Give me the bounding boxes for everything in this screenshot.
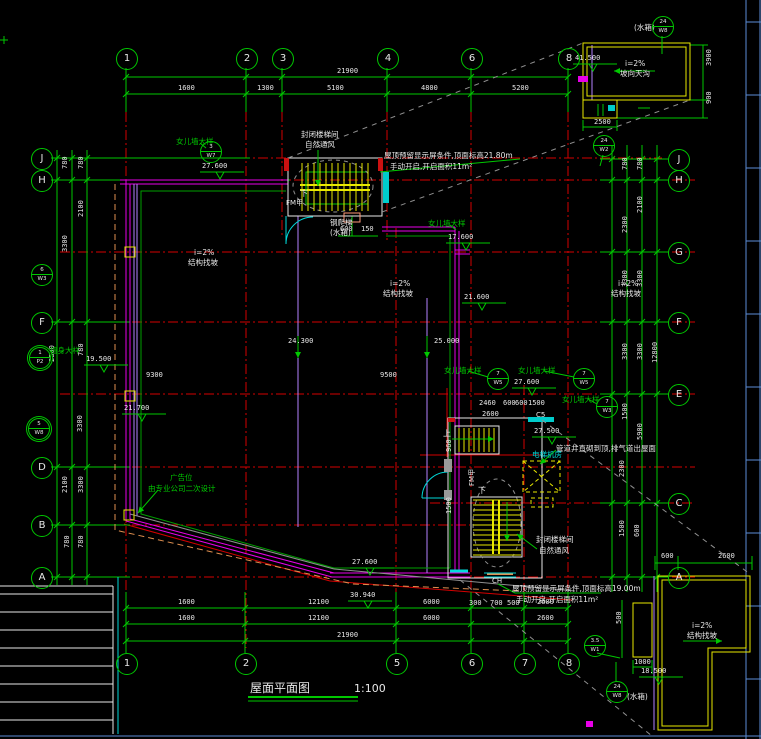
text-overlay: 2190016001300510048005200160012100600030… <box>0 0 761 739</box>
detail-callout: 24W8 <box>606 681 628 703</box>
dimension-label: 3300 <box>77 415 84 432</box>
dimension-label: 780 <box>62 156 69 169</box>
annotation: 女儿墙大样 <box>444 367 482 375</box>
dimension-label: 780 <box>622 157 629 170</box>
axis-bubble-6: 6 <box>461 653 483 675</box>
axis-bubble-G: G <box>668 242 690 264</box>
axis-bubble-J: J <box>31 148 53 170</box>
dimension-label: 600 <box>503 400 516 407</box>
dimension-label: 2300 <box>619 460 626 477</box>
dimension-label: 1500 <box>622 403 629 420</box>
annotation: 墙身大样 <box>50 347 80 355</box>
dimension-label: 21900 <box>337 68 358 75</box>
dimension-label: 3300 <box>637 343 644 360</box>
plan-label: 上 <box>443 430 451 438</box>
axis-bubble-A: A <box>668 567 690 589</box>
dimension-label: 2460 <box>479 400 496 407</box>
dimension-label: 900 <box>706 91 713 104</box>
dimension-label: 12100 <box>308 599 329 606</box>
annotation: 由专业公司二次设计 <box>148 485 216 493</box>
dimension-label: 1300 <box>257 85 274 92</box>
detail-callout: 3W7 <box>200 141 222 163</box>
dimension-label: 1000 <box>634 659 651 666</box>
cad-viewport: 2190016001300510048005200160012100600030… <box>0 0 761 739</box>
dimension-label: 1600 <box>178 85 195 92</box>
annotation: 电梯机房 <box>532 451 562 459</box>
axis-bubble-2: 2 <box>235 653 257 675</box>
dimension-label: 2600 <box>718 553 735 560</box>
plan-label: 下 <box>300 190 308 198</box>
annotation: 女儿墙大样 <box>518 367 556 375</box>
dimension-label: 12100 <box>308 615 329 622</box>
annotation: 女儿墙大样 <box>562 396 600 404</box>
dimension-label: 600 <box>515 400 528 407</box>
dimension-label: 1500 <box>446 497 453 514</box>
dimension-label: 5100 <box>327 85 344 92</box>
dimension-label: 5200 <box>512 85 529 92</box>
dimension-label: 3300 <box>78 476 85 493</box>
axis-bubble-8: 8 <box>558 48 580 70</box>
dimension-label: 1600 <box>178 615 195 622</box>
dimension-label: 5900 <box>637 423 644 440</box>
axis-bubble-1: 1 <box>116 653 138 675</box>
dimension-label: 21900 <box>337 632 358 639</box>
axis-bubble-5: 5 <box>386 653 408 675</box>
dimension-label: 24.300 <box>288 338 313 345</box>
dimension-label: 780 <box>78 156 85 169</box>
dimension-label: 9300 <box>146 372 163 379</box>
axis-bubble-D: D <box>31 457 53 479</box>
annotation: 手动开启,开启面积11m² <box>516 596 598 604</box>
axis-bubble-8: 8 <box>558 653 580 675</box>
elevation-value: 21.600 <box>464 294 489 301</box>
annotation: (水箱) <box>330 229 351 237</box>
dimension-label: 2100 <box>78 200 85 217</box>
elevation-value: 19.500 <box>86 356 111 363</box>
annotation: 封闭楼梯间 <box>301 131 339 139</box>
drawing-title-text: 屋面平面图 <box>250 681 310 695</box>
detail-callout: 6W3 <box>31 264 53 286</box>
dimension-label: 600 <box>661 553 674 560</box>
detail-callout: 7W5 <box>573 368 595 390</box>
elevation-value: 30.940 <box>350 592 375 599</box>
detail-callout: 7W3 <box>596 396 618 418</box>
elevation-value: 18.500 <box>641 668 666 675</box>
axis-bubble-C: C <box>668 493 690 515</box>
axis-bubble-F: F <box>668 312 690 334</box>
dimension-label: 1500 <box>619 520 626 537</box>
annotation: 广告位 <box>170 474 193 482</box>
detail-callout: 5W8 <box>28 418 50 440</box>
annotation: 钢爬梯 <box>330 219 353 227</box>
axis-bubble-F: F <box>31 312 53 334</box>
detail-callout: 3.5W1 <box>584 635 606 657</box>
annotation: 手动开启,开启面积11m² <box>390 163 472 171</box>
dimension-label: 2300 <box>622 216 629 233</box>
annotation: 自然通风 <box>539 547 569 555</box>
axis-bubble-7: 7 <box>514 653 536 675</box>
annotation: 自然通风 <box>305 141 335 149</box>
annotation: 女儿墙大样 <box>428 220 466 228</box>
elevation-value: 17.600 <box>448 234 473 241</box>
elevation-value: 27.600 <box>514 379 539 386</box>
detail-callout: 1P2 <box>29 347 51 369</box>
annotation: 封闭楼梯间 <box>536 536 574 544</box>
annotation: i=2% <box>194 249 214 257</box>
dimension-label: 3300 <box>622 343 629 360</box>
detail-callout: 24W8 <box>652 16 674 38</box>
elevation-value: 21.700 <box>124 405 149 412</box>
dimension-label: 2600 <box>482 411 499 418</box>
axis-bubble-B: B <box>31 515 53 537</box>
drawing-title: 屋面平面图1:100 <box>250 679 386 696</box>
dimension-label: 25.000 <box>434 338 459 345</box>
plan-label: C5 <box>536 412 545 419</box>
plan-label: 下 <box>478 487 486 495</box>
dimension-label: 500 <box>616 611 623 624</box>
dimension-label: 6000 <box>423 615 440 622</box>
axis-bubble-3: 3 <box>272 48 294 70</box>
annotation: 结构找坡 <box>611 290 641 298</box>
detail-callout: 7W5 <box>487 368 509 390</box>
dimension-label: 780 <box>637 157 644 170</box>
dimension-label: 2500 <box>594 119 611 126</box>
axis-bubble-6: 6 <box>461 48 483 70</box>
dimension-label: 3300 <box>62 235 69 252</box>
dimension-label: 150 <box>361 226 374 233</box>
dimension-label: 960 <box>446 439 453 452</box>
dimension-label: 780 <box>78 535 85 548</box>
annotation: i=2% <box>625 60 645 68</box>
axis-bubble-H: H <box>31 170 53 192</box>
plan-label: FM甲 <box>286 200 303 207</box>
dimension-label: 1500 <box>528 400 545 407</box>
annotation: 管道井直砌到顶,排气道出屋面 <box>556 445 656 453</box>
axis-bubble-4: 4 <box>377 48 399 70</box>
axis-bubble-2: 2 <box>236 48 258 70</box>
elevation-value: 27.500 <box>534 428 559 435</box>
detail-callout: 24W2 <box>593 135 615 157</box>
dimension-label: 4800 <box>421 85 438 92</box>
axis-bubble-H: H <box>668 170 690 192</box>
annotation: i=2% <box>692 622 712 630</box>
dimension-label: 700 <box>490 600 503 607</box>
annotation: 结构找坡 <box>188 259 218 267</box>
dimension-label: 600 <box>634 524 641 537</box>
annotation: i=2% <box>390 280 410 288</box>
plan-label: FM甲 <box>469 469 476 486</box>
annotation: 结构找坡 <box>383 290 413 298</box>
dimension-label: 9500 <box>380 372 397 379</box>
dimension-label: 780 <box>64 535 71 548</box>
axis-bubble-A: A <box>31 567 53 589</box>
dimension-label: 300 <box>469 600 482 607</box>
annotation: 屋顶预留显示屏条件,顶面标高21.80m <box>384 152 513 160</box>
dimension-label: 2100 <box>637 196 644 213</box>
dimension-label: 3900 <box>706 49 713 66</box>
dimension-label: 12800 <box>652 342 659 363</box>
dimension-label: 6000 <box>423 599 440 606</box>
axis-bubble-J: J <box>668 149 690 171</box>
annotation: 坡向天沟 <box>620 70 650 78</box>
annotation: (水箱) <box>627 693 648 701</box>
annotation: 屋顶预留显示屏条件,顶面标高19.00m <box>512 585 641 593</box>
axis-bubble-1: 1 <box>116 48 138 70</box>
annotation: 结构找坡 <box>687 632 717 640</box>
dimension-label: 1600 <box>178 599 195 606</box>
dimension-label: 2600 <box>537 615 554 622</box>
axis-bubble-E: E <box>668 384 690 406</box>
annotation: i=2% <box>618 280 638 288</box>
drawing-scale: 1:100 <box>354 682 386 695</box>
plan-label: CH <box>492 578 502 585</box>
elevation-value: 27.600 <box>352 559 377 566</box>
dimension-label: 2100 <box>62 476 69 493</box>
elevation-value: 27.600 <box>202 163 227 170</box>
